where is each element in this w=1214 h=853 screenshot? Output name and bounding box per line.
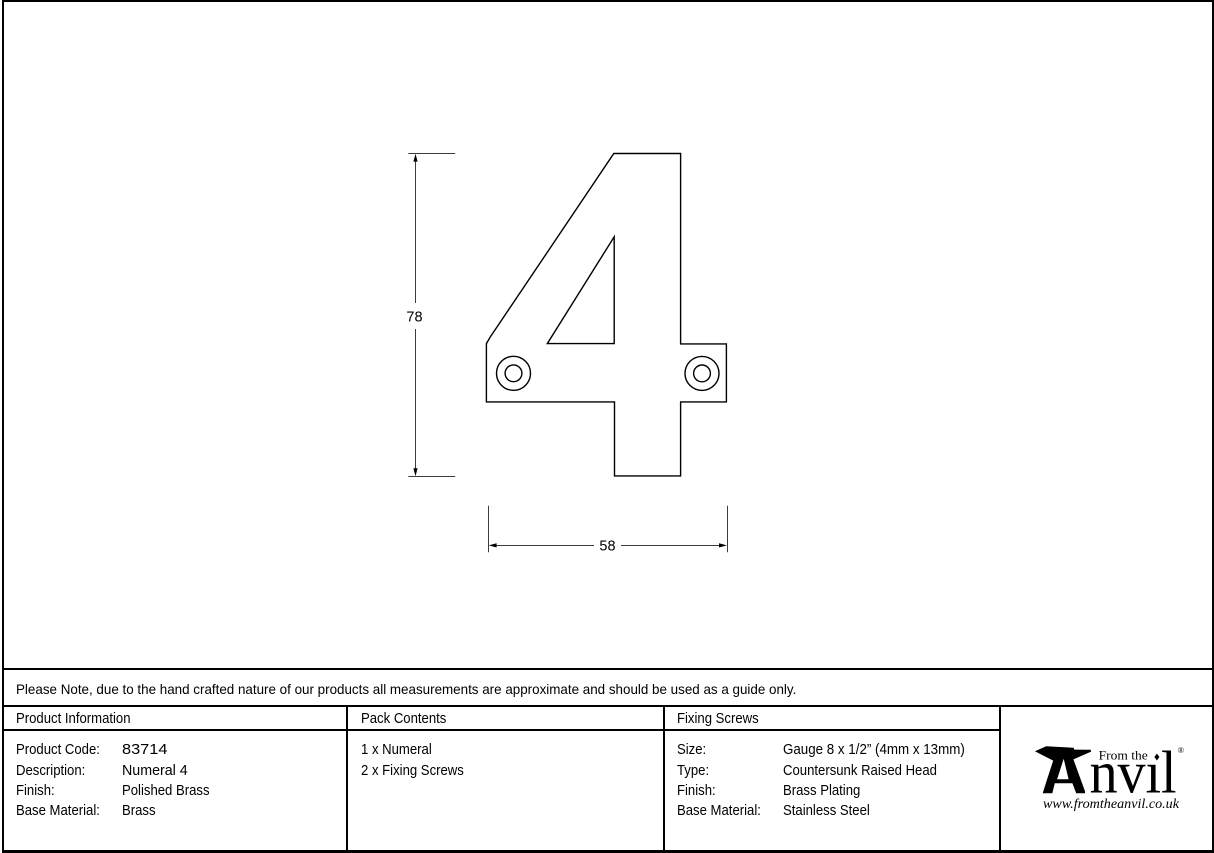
svg-text:®: ®: [1178, 745, 1185, 755]
svg-text:nvıl: nvıl: [1090, 740, 1177, 806]
svg-text:www.fromtheanvil.co.uk: www.fromtheanvil.co.uk: [1043, 797, 1180, 812]
svg-text:58: 58: [599, 539, 615, 555]
svg-text:78: 78: [406, 310, 422, 326]
